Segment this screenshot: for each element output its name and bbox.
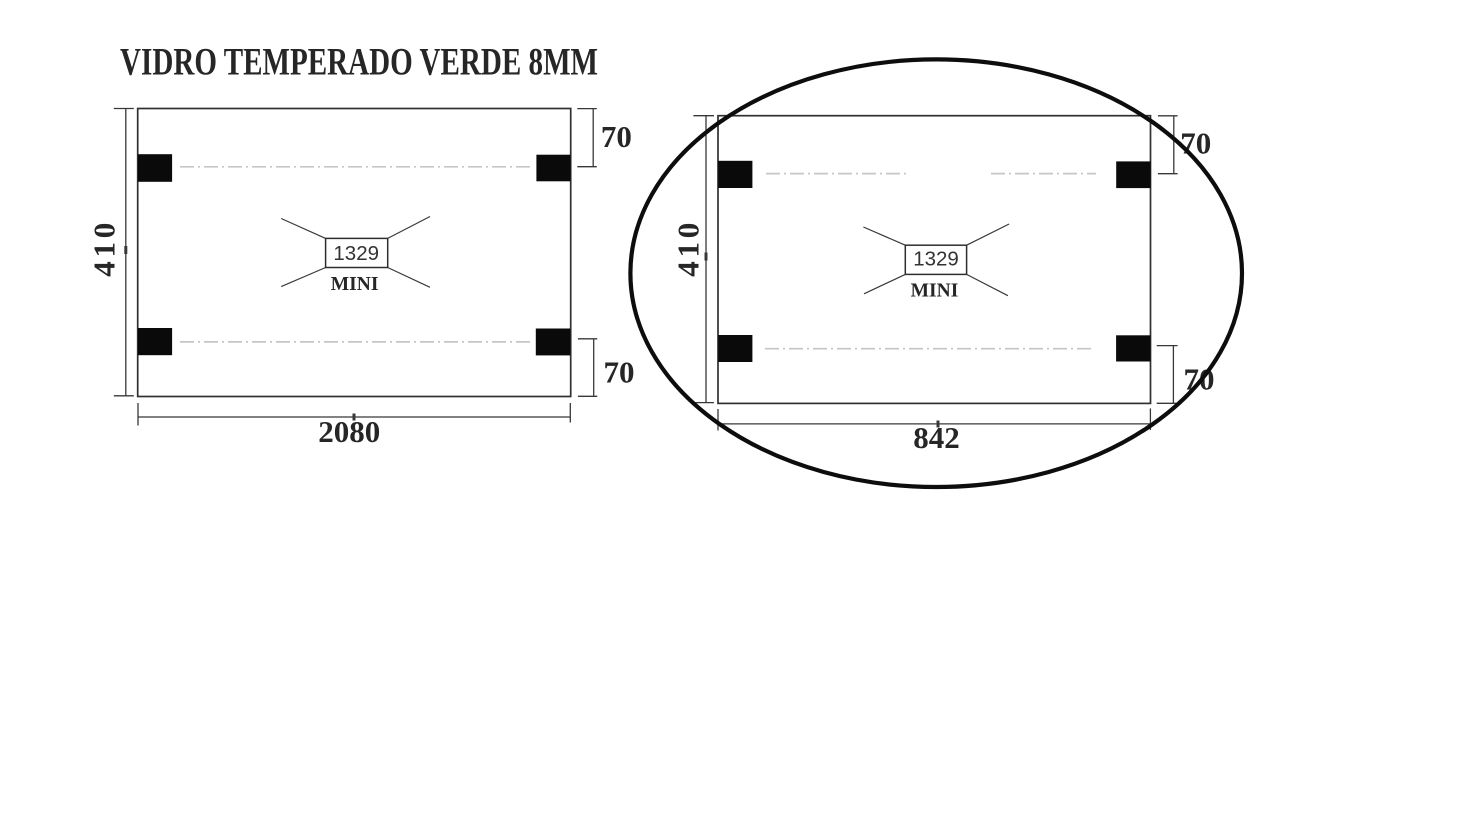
svg-text:MINI: MINI — [911, 280, 959, 301]
svg-text:1329: 1329 — [333, 242, 379, 265]
svg-text:842: 842 — [913, 420, 960, 455]
svg-text:MINI: MINI — [331, 274, 379, 295]
svg-text:70: 70 — [604, 355, 635, 390]
svg-text:410: 410 — [87, 223, 122, 277]
svg-text:410: 410 — [671, 223, 706, 277]
svg-text:1329: 1329 — [913, 248, 959, 271]
svg-text:VIDRO TEMPERADO VERDE 8MM: VIDRO TEMPERADO VERDE 8MM — [120, 41, 598, 84]
svg-text:2080: 2080 — [318, 414, 380, 449]
svg-text:70: 70 — [601, 119, 632, 154]
svg-text:70: 70 — [1180, 126, 1211, 161]
